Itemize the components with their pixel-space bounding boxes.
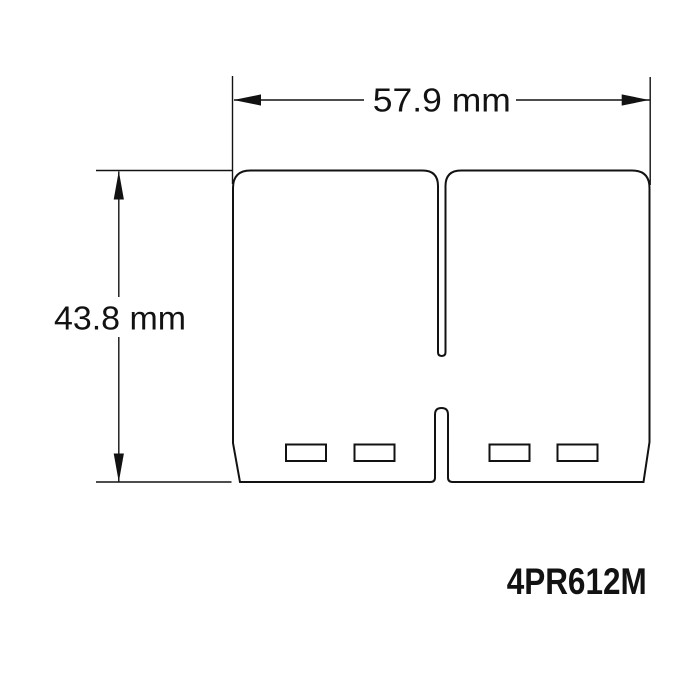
svg-text:57.9 mm: 57.9 mm xyxy=(373,82,511,119)
svg-text:43.8 mm: 43.8 mm xyxy=(54,300,186,337)
svg-text:4PR612M: 4PR612M xyxy=(507,561,647,602)
